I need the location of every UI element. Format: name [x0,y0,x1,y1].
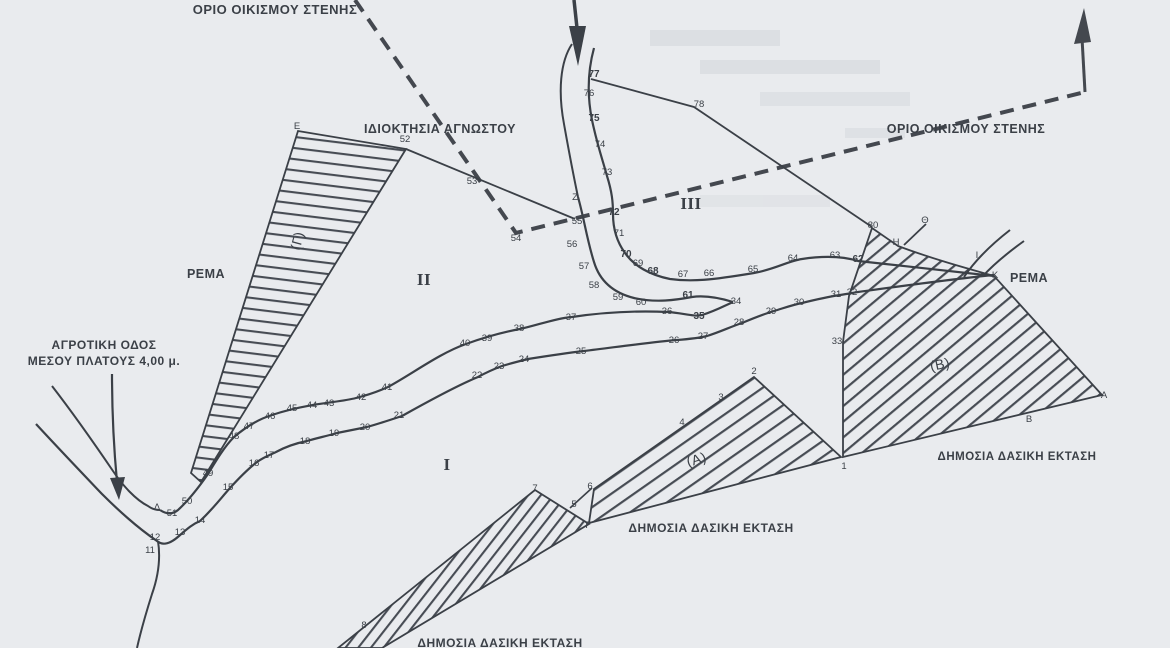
settlement-boundary-label-right: ΟΡΙΟ ΟΙΚΙΣΜΟΥ ΣΤΕΝΗΣ [887,122,1046,136]
survey-point-77: 77 [588,69,600,80]
stream-label-left: ΡΕΜΑ [187,267,225,281]
survey-point-61: 61 [682,290,694,301]
survey-point-2: 2 [751,366,756,377]
survey-point-80: 80 [868,220,879,231]
survey-point-5: 5 [571,499,576,510]
survey-point-22: 22 [472,370,483,381]
survey-point-55: 55 [572,216,583,227]
survey-point-47: 47 [244,421,255,432]
survey-map-page: ΟΡΙΟ ΟΙΚΙΣΜΟΥ ΣΤΕΝΗΣΟΡΙΟ ΟΙΚΙΣΜΟΥ ΣΤΕΝΗΣ… [0,0,1170,648]
survey-point-45: 45 [287,403,298,414]
stream-label-right: ΡΕΜΑ [1010,271,1048,285]
rural-road-label-line2: ΜΕΣΟΥ ΠΛΑΤΟΥΣ 4,00 μ. [28,354,180,368]
survey-point-11: 11 [145,545,155,556]
survey-point-54: 54 [511,233,522,244]
survey-point-41: 41 [382,382,393,393]
survey-point-25: 25 [576,346,587,357]
survey-point-29: 29 [766,306,777,317]
survey-point-12: 12 [150,532,161,543]
survey-point-Ι: Ι [976,250,979,261]
survey-point-34: 34 [731,296,742,307]
survey-point-Θ: Θ [921,215,928,226]
survey-point-70: 70 [620,249,632,260]
survey-point-13: 13 [175,527,186,538]
survey-point-17: 17 [264,450,275,461]
survey-point-76: 76 [584,88,595,99]
survey-point-18: 18 [300,436,311,447]
public-forest-label-center: ΔΗΜΟΣΙΑ ΔΑΣΙΚΗ ΕΚΤΑΣΗ [628,521,793,535]
survey-point-Γ: Γ [585,520,590,531]
survey-point-57: 57 [579,261,590,272]
survey-point-49: 49 [203,468,214,479]
survey-point-Δ: Δ [154,502,161,513]
survey-point-78: 78 [694,99,705,110]
survey-point-51: 51 [167,508,178,519]
rural-road-label-line1: ΑΓΡΟΤΙΚΗ ΟΔΟΣ [52,338,157,352]
survey-point-60: 60 [636,297,647,308]
survey-point-4: 4 [679,417,684,428]
survey-point-52: 52 [400,134,411,145]
survey-point-37: 37 [566,312,577,323]
survey-point-31: 31 [831,289,842,300]
survey-point-33: 33 [832,336,843,347]
survey-point-Α: Α [1101,390,1108,401]
survey-point-63: 63 [830,250,841,261]
survey-point-75: 75 [588,113,600,124]
survey-point-3: 3 [718,392,723,403]
survey-point-Κ: Κ [992,270,999,281]
survey-point-27: 27 [698,331,709,342]
survey-point-74: 74 [595,139,606,150]
survey-point-6: 6 [587,481,592,492]
zone-III-label: ΙΙΙ [680,194,701,213]
survey-point-28: 28 [734,317,745,328]
survey-point-30: 30 [794,297,805,308]
settlement-boundary-label-top-left: ΟΡΙΟ ΟΙΚΙΣΜΟΥ ΣΤΕΝΗΣ [193,2,358,17]
survey-point-36: 36 [662,306,673,317]
survey-point-24: 24 [519,354,530,365]
survey-point-44: 44 [307,400,318,411]
survey-point-35: 35 [693,311,705,322]
survey-point-46: 46 [265,411,276,422]
unknown-owner-label: ΙΔΙΟΚΤΗΣΙΑ ΑΓΝΩΣΤΟΥ [364,122,516,136]
public-forest-label-right: ΔΗΜΟΣΙΑ ΔΑΣΙΚΗ ΕΚΤΑΣΗ [938,451,1097,463]
survey-point-56: 56 [567,239,578,250]
survey-point-64: 64 [788,253,799,264]
zone-II-label: ΙΙ [417,270,431,289]
survey-point-72: 72 [608,207,620,218]
survey-point-19: 19 [329,428,340,439]
survey-point-50: 50 [182,496,193,507]
survey-point-48: 48 [229,431,240,442]
survey-point-16: 16 [249,458,260,469]
survey-point-53: 53 [467,176,478,187]
public-forest-label-bottom: ΔΗΜΟΣΙΑ ΔΑΣΙΚΗ ΕΚΤΑΣΗ [417,636,582,648]
survey-point-42: 42 [356,392,367,403]
survey-point-59: 59 [613,292,624,303]
survey-point-14: 14 [195,515,206,526]
survey-point-66: 66 [704,268,715,279]
survey-point-23: 23 [494,361,505,372]
survey-point-21: 21 [394,410,405,421]
zone-I-label: Ι [443,455,450,474]
survey-point-Β: Β [1026,414,1032,425]
survey-point-40: 40 [460,338,471,349]
survey-point-8: 8 [361,620,366,631]
survey-point-62: 62 [852,254,864,265]
survey-point-32: 32 [847,287,858,298]
survey-point-1: 1 [841,461,846,472]
survey-point-38: 38 [514,323,525,334]
survey-point-20: 20 [360,422,371,433]
survey-point-7: 7 [532,483,537,494]
survey-point-39: 39 [482,333,493,344]
survey-point-73: 73 [602,167,613,178]
survey-point-68: 68 [647,266,659,277]
survey-point-71: 71 [614,228,625,239]
survey-point-Ζ: Ζ [572,192,578,203]
survey-point-69: 69 [633,258,644,269]
survey-point-65: 65 [748,264,759,275]
survey-point-67: 67 [678,269,689,280]
survey-map-canvas: ΟΡΙΟ ΟΙΚΙΣΜΟΥ ΣΤΕΝΗΣΟΡΙΟ ΟΙΚΙΣΜΟΥ ΣΤΕΝΗΣ… [0,0,1170,648]
survey-point-15: 15 [223,482,234,493]
survey-point-Ε: Ε [294,121,300,132]
survey-point-58: 58 [589,280,600,291]
survey-point-43: 43 [324,398,335,409]
survey-point-26: 26 [669,335,680,346]
survey-point-Η: Η [893,237,900,248]
